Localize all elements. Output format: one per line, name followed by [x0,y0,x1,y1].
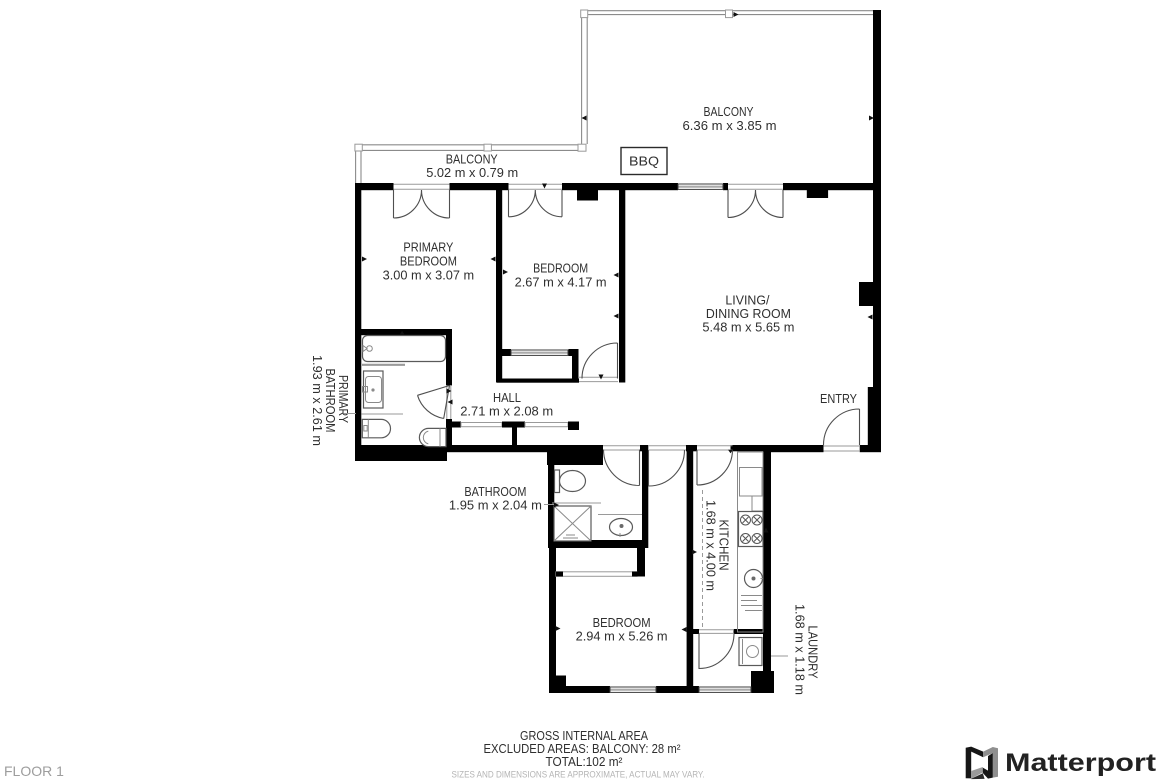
svg-text:ENTRY: ENTRY [820,391,857,406]
svg-text:1.93 m x 2.61 m: 1.93 m x 2.61 m [310,355,325,446]
svg-text:1.68 m x 1.18 m: 1.68 m x 1.18 m [793,604,808,695]
svg-text:BALCONY: BALCONY [704,104,754,119]
svg-text:5.02 m x 0.79 m: 5.02 m x 0.79 m [426,165,518,180]
svg-text:2.94 m x 5.26 m: 2.94 m x 5.26 m [576,629,668,644]
svg-text:FLOOR 1: FLOOR 1 [4,763,64,779]
svg-text:3.00 m x 3.07 m: 3.00 m x 3.07 m [383,268,475,283]
svg-text:TOTAL:102 m²: TOTAL:102 m² [546,754,624,769]
svg-text:1.68 m x 4.00 m: 1.68 m x 4.00 m [704,500,719,591]
svg-text:6.36 m x 3.85 m: 6.36 m x 3.85 m [683,118,777,133]
svg-text:5.48 m x 5.65 m: 5.48 m x 5.65 m [702,320,794,335]
svg-text:SIZES AND DIMENSIONS ARE APPRO: SIZES AND DIMENSIONS ARE APPROXIMATE, AC… [452,770,705,781]
svg-text:BBQ: BBQ [629,154,659,169]
svg-text:BEDROOM: BEDROOM [400,254,457,269]
svg-text:BEDROOM: BEDROOM [533,261,588,276]
svg-text:PRIMARY: PRIMARY [403,240,453,255]
svg-text:Matterport: Matterport [1005,749,1157,777]
svg-text:2.67 m x 4.17 m: 2.67 m x 4.17 m [515,275,607,290]
svg-text:2.71 m x 2.08 m: 2.71 m x 2.08 m [460,404,553,419]
svg-text:1.95 m x 2.04 m: 1.95 m x 2.04 m [449,498,542,513]
